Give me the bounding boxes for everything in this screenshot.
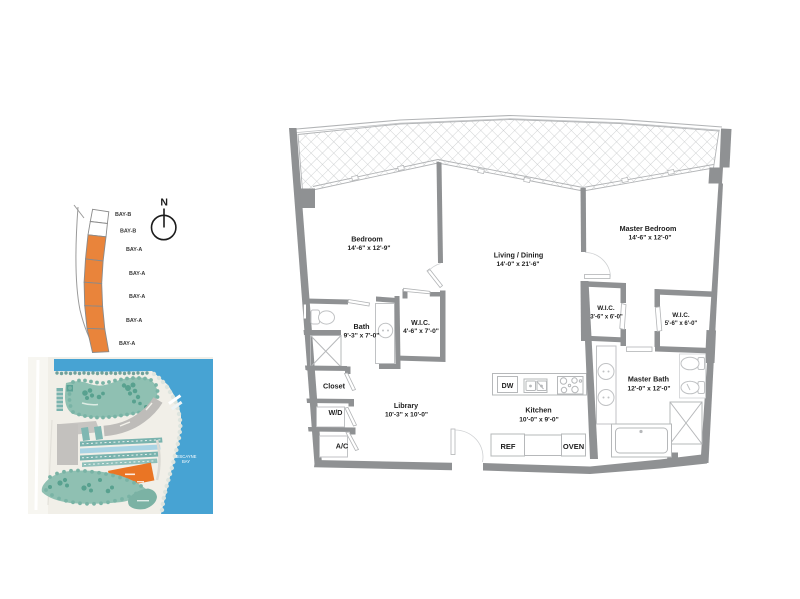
- svg-text:14'-0" x 21'-6": 14'-0" x 21'-6": [496, 261, 539, 268]
- svg-text:10'-0" x 9'-0": 10'-0" x 9'-0": [519, 417, 558, 424]
- svg-text:N: N: [160, 197, 168, 209]
- svg-text:12'-0" x 12'-0": 12'-0" x 12'-0": [627, 386, 670, 393]
- svg-text:BAY-A: BAY-A: [126, 318, 142, 324]
- svg-text:W/D: W/D: [329, 408, 343, 417]
- svg-text:BAY-A: BAY-A: [126, 247, 142, 253]
- svg-text:BAY-A: BAY-A: [119, 341, 135, 347]
- svg-text:BAY-A: BAY-A: [129, 271, 145, 277]
- svg-text:BAY-A: BAY-A: [129, 294, 145, 300]
- svg-text:Library: Library: [394, 401, 418, 410]
- svg-text:5'-6" x 6'-0": 5'-6" x 6'-0": [665, 321, 698, 327]
- svg-text:Master Bath: Master Bath: [628, 375, 669, 384]
- svg-text:DW: DW: [502, 383, 514, 390]
- svg-text:Kitchen: Kitchen: [525, 406, 551, 415]
- svg-text:BAY-B: BAY-B: [115, 212, 131, 218]
- svg-text:4'-6" x 7'-0": 4'-6" x 7'-0": [403, 328, 439, 335]
- svg-text:W.I.C.: W.I.C.: [411, 320, 430, 327]
- svg-text:W.I.C.: W.I.C.: [672, 312, 690, 319]
- svg-text:Bedroom: Bedroom: [351, 235, 383, 244]
- svg-text:Living / Dining: Living / Dining: [494, 251, 544, 260]
- svg-text:REF: REF: [501, 442, 516, 451]
- svg-text:A/C: A/C: [336, 442, 348, 451]
- svg-text:Master Bedroom: Master Bedroom: [620, 224, 677, 233]
- svg-text:14'-6" x 12'-0": 14'-6" x 12'-0": [628, 235, 671, 242]
- svg-text:10'-3" x 10'-0": 10'-3" x 10'-0": [385, 412, 428, 419]
- svg-text:W.I.C.: W.I.C.: [597, 305, 615, 312]
- svg-text:Closet: Closet: [323, 382, 346, 391]
- svg-text:BAY: BAY: [182, 459, 190, 464]
- svg-text:Bath: Bath: [354, 322, 370, 331]
- svg-text:BAY-B: BAY-B: [120, 229, 136, 235]
- svg-text:14'-6" x 12'-9": 14'-6" x 12'-9": [347, 245, 390, 252]
- svg-text:OVEN: OVEN: [563, 442, 584, 451]
- svg-text:3'-6" x 6'-0": 3'-6" x 6'-0": [590, 315, 623, 321]
- svg-text:9'-3" x 7'-0": 9'-3" x 7'-0": [344, 333, 380, 340]
